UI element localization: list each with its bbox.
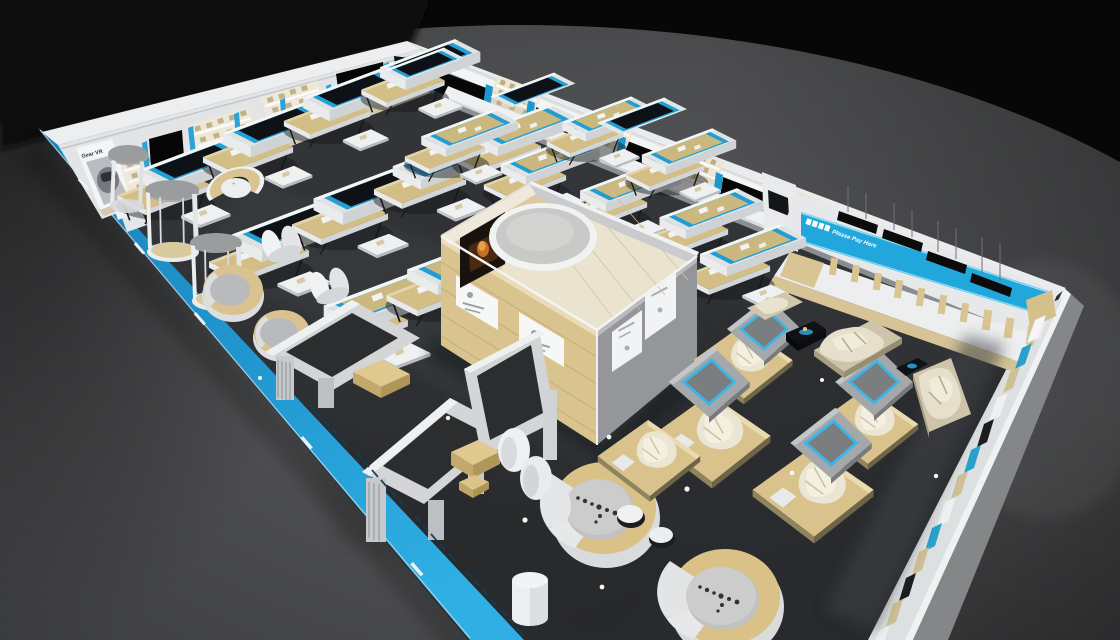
svg-text:+: + <box>232 182 236 188</box>
